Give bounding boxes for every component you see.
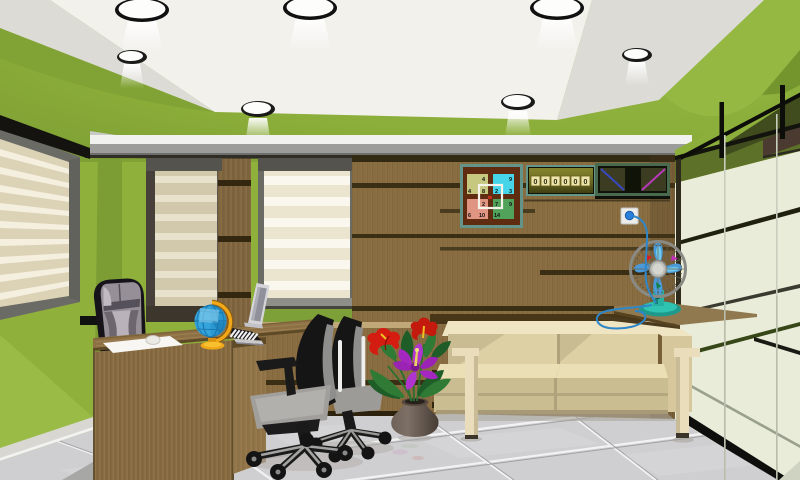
svg-text:0: 0 bbox=[574, 179, 578, 186]
svg-text:0: 0 bbox=[564, 179, 568, 186]
svg-text:14: 14 bbox=[494, 213, 501, 219]
svg-text:0: 0 bbox=[554, 179, 558, 186]
svg-text:2: 2 bbox=[495, 189, 498, 195]
svg-text:3: 3 bbox=[509, 189, 512, 195]
svg-text:10: 10 bbox=[479, 213, 485, 219]
svg-text:9: 9 bbox=[509, 202, 512, 208]
svg-text:6: 6 bbox=[468, 213, 471, 219]
svg-text:0: 0 bbox=[544, 179, 548, 186]
svg-text:0: 0 bbox=[584, 179, 588, 186]
svg-text:9: 9 bbox=[509, 177, 512, 183]
svg-text:0: 0 bbox=[534, 179, 538, 186]
svg-text:8: 8 bbox=[482, 189, 485, 195]
